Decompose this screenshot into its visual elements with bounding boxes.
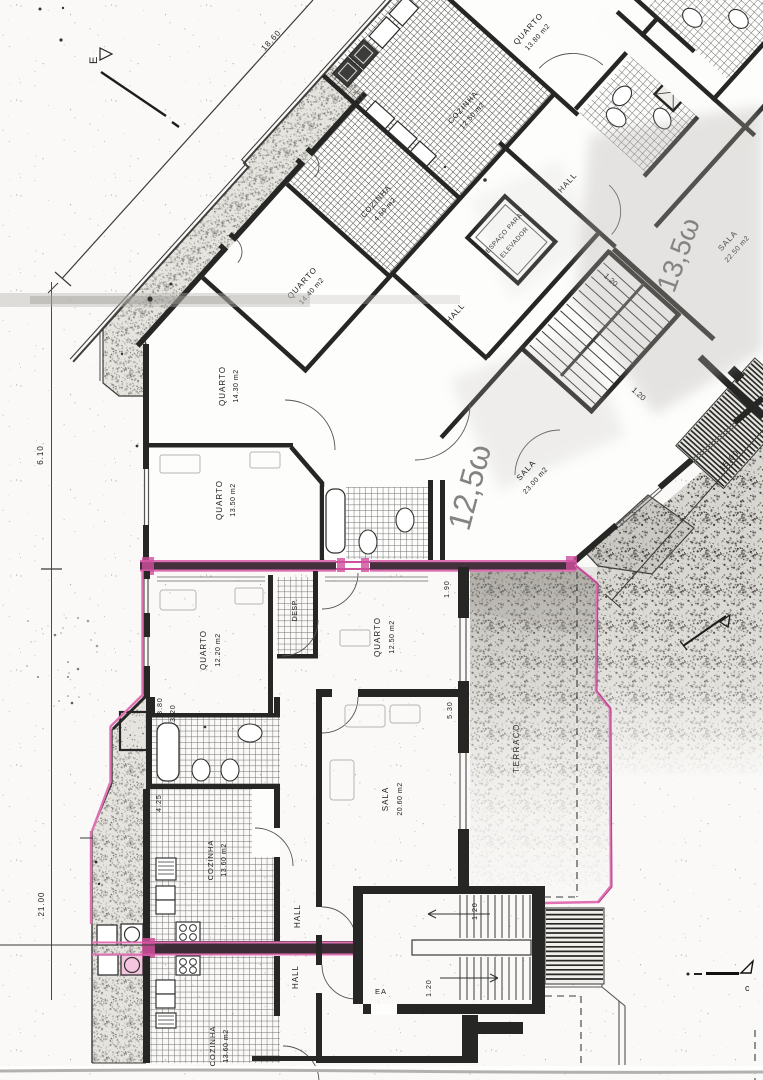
svg-text:13.60 m2: 13.60 m2 bbox=[223, 1029, 230, 1062]
svg-text:5.30: 5.30 bbox=[447, 701, 454, 719]
svg-text:12.20 m2: 12.20 m2 bbox=[215, 633, 222, 666]
svg-text:20.60 m2: 20.60 m2 bbox=[397, 782, 404, 815]
svg-text:TERRAÇO: TERRAÇO bbox=[512, 723, 521, 773]
svg-text:COZINHA: COZINHA bbox=[206, 840, 215, 881]
svg-text:SALA: SALA bbox=[381, 787, 390, 811]
svg-text:6.10: 6.10 bbox=[36, 445, 45, 465]
svg-text:QUARTO: QUARTO bbox=[215, 480, 224, 520]
svg-text:4.25: 4.25 bbox=[156, 794, 163, 812]
svg-text:COZINHA: COZINHA bbox=[208, 1026, 217, 1067]
svg-text:QUARTO: QUARTO bbox=[373, 617, 382, 657]
svg-text:QUARTO: QUARTO bbox=[218, 366, 227, 406]
svg-text:13.60 m2: 13.60 m2 bbox=[221, 843, 228, 876]
svg-text:13.50 m2: 13.50 m2 bbox=[230, 483, 237, 516]
svg-text:HALL: HALL bbox=[293, 904, 302, 928]
svg-text:3.80: 3.80 bbox=[157, 697, 164, 715]
svg-text:HALL: HALL bbox=[291, 965, 300, 989]
svg-text:QUARTO: QUARTO bbox=[199, 630, 208, 670]
svg-text:DESP.: DESP. bbox=[292, 599, 299, 622]
svg-text:EA: EA bbox=[375, 987, 387, 996]
svg-text:c: c bbox=[745, 983, 750, 993]
svg-text:1.20: 1.20 bbox=[426, 979, 433, 997]
svg-text:E: E bbox=[88, 57, 100, 64]
svg-text:12.50 m2: 12.50 m2 bbox=[389, 620, 396, 653]
svg-text:21.00: 21.00 bbox=[37, 891, 46, 916]
svg-text:1.20: 1.20 bbox=[472, 902, 479, 920]
svg-text:1.90: 1.90 bbox=[444, 580, 451, 598]
svg-text:3.20: 3.20 bbox=[170, 704, 177, 722]
svg-text:14.30 m2: 14.30 m2 bbox=[233, 369, 240, 402]
